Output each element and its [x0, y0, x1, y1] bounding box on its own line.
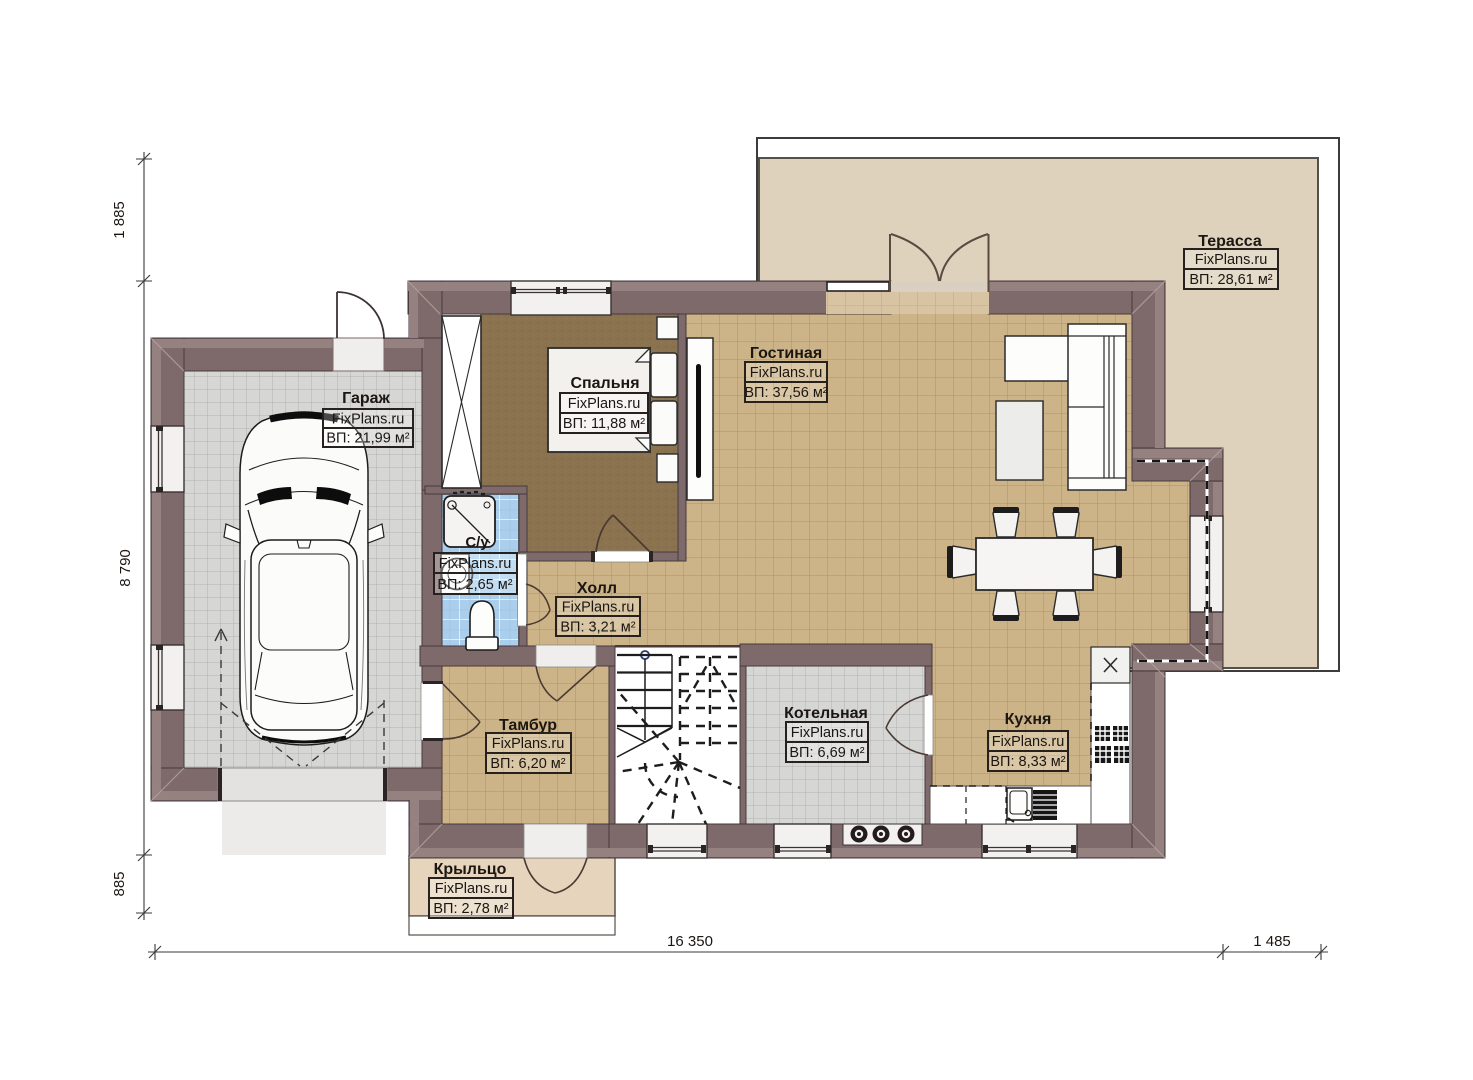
svg-text:FixPlans.ru: FixPlans.ru: [568, 396, 641, 412]
svg-text:1 485: 1 485: [1253, 933, 1291, 950]
svg-text:FixPlans.ru: FixPlans.ru: [791, 725, 864, 741]
svg-text:16 350: 16 350: [667, 933, 713, 950]
svg-text:FixPlans.ru: FixPlans.ru: [750, 365, 823, 381]
svg-text:ВП: 6,69 м²: ВП: 6,69 м²: [789, 745, 864, 761]
svg-text:Крыльцо: Крыльцо: [434, 861, 507, 878]
svg-text:Холл: Холл: [577, 580, 617, 597]
svg-text:ВП: 37,56 м²: ВП: 37,56 м²: [744, 385, 827, 401]
svg-text:1 885: 1 885: [111, 201, 128, 239]
svg-text:FixPlans.ru: FixPlans.ru: [439, 556, 512, 572]
svg-text:ВП: 8,33 м²: ВП: 8,33 м²: [990, 754, 1065, 770]
svg-text:ВП: 28,61 м²: ВП: 28,61 м²: [1189, 272, 1272, 288]
svg-text:С/у: С/у: [465, 534, 489, 551]
svg-text:ВП: 21,99 м²: ВП: 21,99 м²: [326, 431, 409, 447]
svg-text:FixPlans.ru: FixPlans.ru: [435, 881, 508, 897]
svg-text:ВП: 2,65 м²: ВП: 2,65 м²: [437, 577, 512, 593]
svg-text:Кухня: Кухня: [1005, 711, 1052, 728]
svg-text:Спальня: Спальня: [570, 375, 639, 392]
svg-text:ВП: 3,21 м²: ВП: 3,21 м²: [560, 620, 635, 636]
svg-text:Гараж: Гараж: [342, 390, 390, 407]
svg-text:FixPlans.ru: FixPlans.ru: [332, 412, 405, 428]
svg-text:Терасса: Терасса: [1198, 233, 1262, 250]
svg-text:Котельная: Котельная: [784, 705, 868, 722]
svg-text:FixPlans.ru: FixPlans.ru: [1195, 252, 1268, 268]
svg-text:885: 885: [111, 871, 128, 896]
svg-text:ВП: 11,88 м²: ВП: 11,88 м²: [563, 416, 645, 432]
svg-text:ВП: 6,20 м²: ВП: 6,20 м²: [490, 756, 565, 772]
svg-text:8 790: 8 790: [117, 549, 134, 587]
svg-text:Тамбур: Тамбур: [499, 717, 557, 734]
svg-text:Гостиная: Гостиная: [750, 345, 822, 362]
svg-text:ВП: 2,78 м²: ВП: 2,78 м²: [433, 901, 508, 917]
svg-text:FixPlans.ru: FixPlans.ru: [492, 736, 565, 752]
svg-text:FixPlans.ru: FixPlans.ru: [992, 734, 1065, 750]
svg-text:FixPlans.ru: FixPlans.ru: [562, 600, 635, 616]
